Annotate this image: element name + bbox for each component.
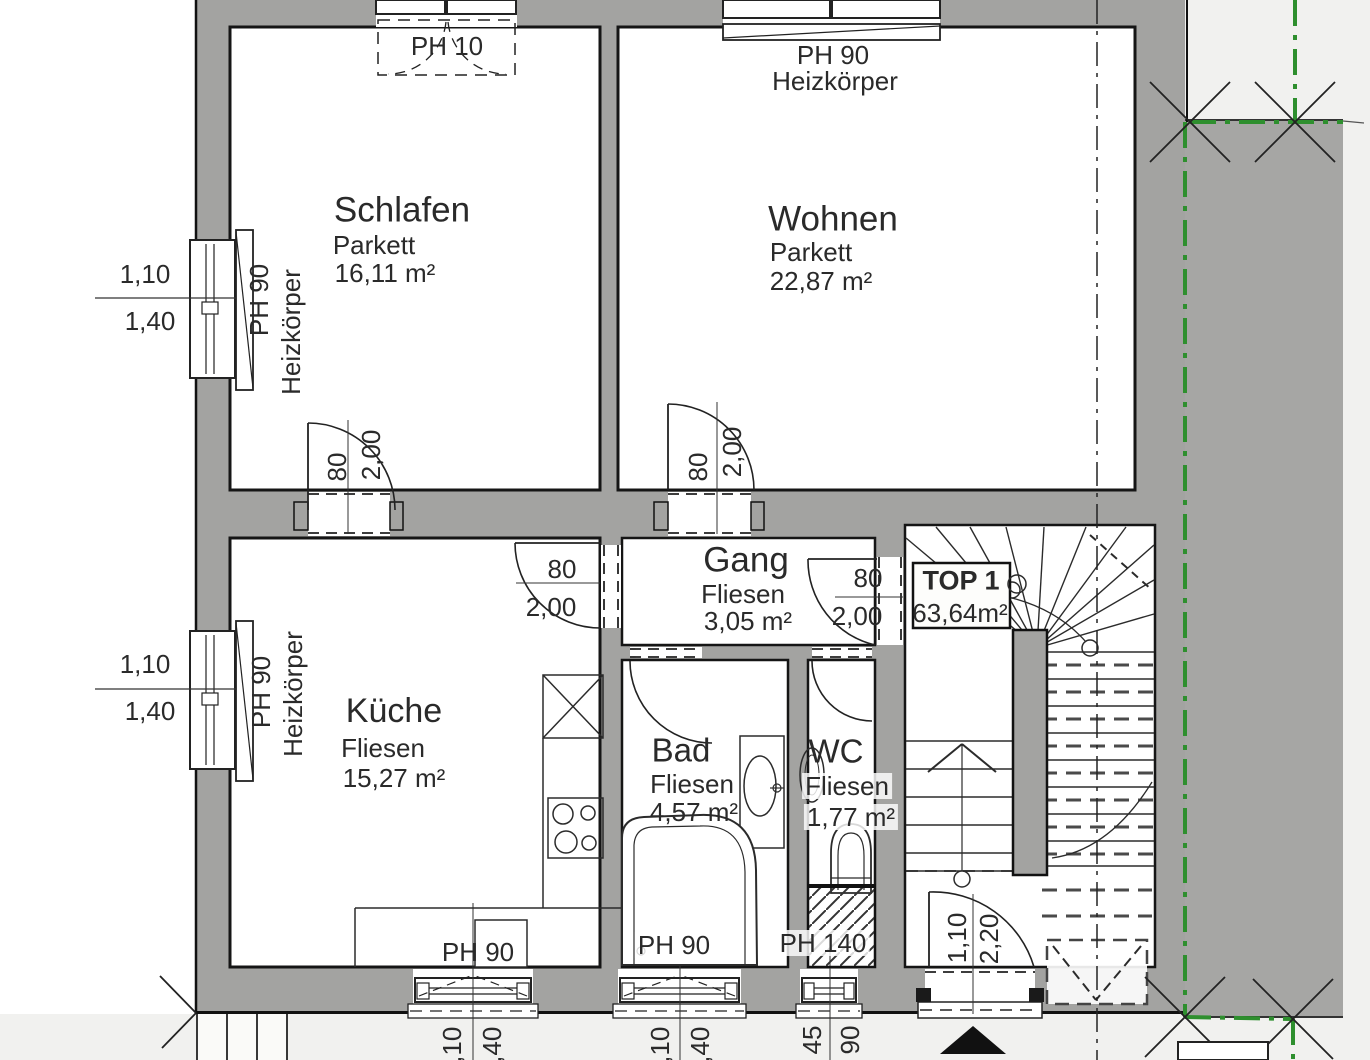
- window-label-left1-ph90: PH 90: [246, 264, 272, 336]
- stair-spine-wall: [1013, 630, 1047, 875]
- room-name-wohnen: Wohnen: [768, 202, 898, 237]
- room-floor-schlafen: Parkett: [333, 232, 415, 258]
- dim-door-entrance-width: 1,10: [944, 913, 970, 964]
- dim-door-schlafen-width: 80: [324, 453, 350, 482]
- toilet-icon: [831, 824, 871, 893]
- exterior-steps: [197, 1014, 287, 1060]
- window-label-bad-bottom: PH 90: [635, 932, 713, 958]
- room-floor-bad: Fliesen: [650, 771, 734, 797]
- room-wohnen: [618, 27, 1135, 490]
- neighbor-building: [1185, 120, 1364, 1017]
- dim-left2-top: 1,10: [120, 651, 171, 677]
- room-area-gang: 3,05 m²: [704, 608, 792, 634]
- room-name-gang: Gang: [703, 543, 789, 578]
- window-label-wohnen-heizkoerper: Heizkörper: [772, 68, 898, 94]
- room-name-kueche: Küche: [346, 694, 442, 728]
- dim-bottom-bad-left: 1,10: [647, 1027, 673, 1060]
- room-area-wc: 1,77 m²: [804, 804, 898, 830]
- window-wohnen-top: [723, 0, 940, 40]
- dim-door-entrance-height: 2,20: [976, 914, 1002, 965]
- floor-plan: Schlafen Parkett 16,11 m² Wohnen Parkett…: [0, 0, 1370, 1060]
- room-name-schlafen: Schlafen: [334, 193, 470, 228]
- window-label-wohnen-ph90: PH 90: [797, 42, 869, 68]
- washbasin-bad-icon: [740, 736, 784, 848]
- dim-door-stair-height: 2,00: [832, 603, 883, 629]
- window-label-left2-heizkoerper: Heizkörper: [280, 631, 306, 757]
- room-floor-kueche: Fliesen: [341, 735, 425, 761]
- room-area-kueche: 15,27 m²: [343, 765, 446, 791]
- dim-left2-bottom: 1,40: [125, 698, 176, 724]
- dim-bottom-kueche-right: 1,40: [479, 1027, 505, 1060]
- room-name-bad: Bad: [652, 734, 711, 767]
- dim-door-wohnen-width: 80: [685, 453, 711, 482]
- dim-left1-bottom: 1,40: [125, 308, 176, 334]
- unit-label: TOP 1: [922, 568, 999, 595]
- room-floor-gang: Fliesen: [701, 581, 785, 607]
- window-label-ph10: PH 10: [411, 33, 483, 59]
- dim-bottom-bad-right: 1,40: [687, 1027, 713, 1060]
- room-floor-wc: Fliesen: [802, 773, 892, 799]
- dim-bottom-kueche-left: 1,10: [439, 1027, 465, 1060]
- dim-door-wohnen-height: 2,00: [719, 427, 745, 478]
- dim-left1-top: 1,10: [120, 261, 171, 287]
- dim-bottom-wc-left: 45: [799, 1026, 825, 1055]
- window-label-left1-heizkoerper: Heizkörper: [278, 269, 304, 395]
- dim-bottom-wc-right: 90: [837, 1026, 863, 1055]
- dim-door-schlafen-height: 2,00: [358, 430, 384, 481]
- unit-area: 63,64m²: [912, 600, 1007, 626]
- plan-drawing: [0, 0, 1370, 1060]
- dim-door-stair-width: 80: [854, 565, 883, 591]
- room-floor-wohnen: Parkett: [770, 239, 852, 265]
- exterior-structure: [1178, 1042, 1268, 1060]
- room-name-wc: WC: [809, 735, 864, 768]
- window-label-kueche-bottom: PH 90: [442, 939, 514, 965]
- room-area-schlafen: 16,11 m²: [335, 260, 436, 286]
- room-area-bad: 4,57 m²: [650, 799, 738, 825]
- room-area-wohnen: 22,87 m²: [770, 268, 873, 294]
- window-label-wc-bottom: PH 140: [777, 930, 870, 956]
- window-label-left2-ph90: PH 90: [248, 656, 274, 728]
- dim-door-kueche-width: 80: [548, 556, 577, 582]
- dim-door-kueche-height: 2,00: [526, 594, 577, 620]
